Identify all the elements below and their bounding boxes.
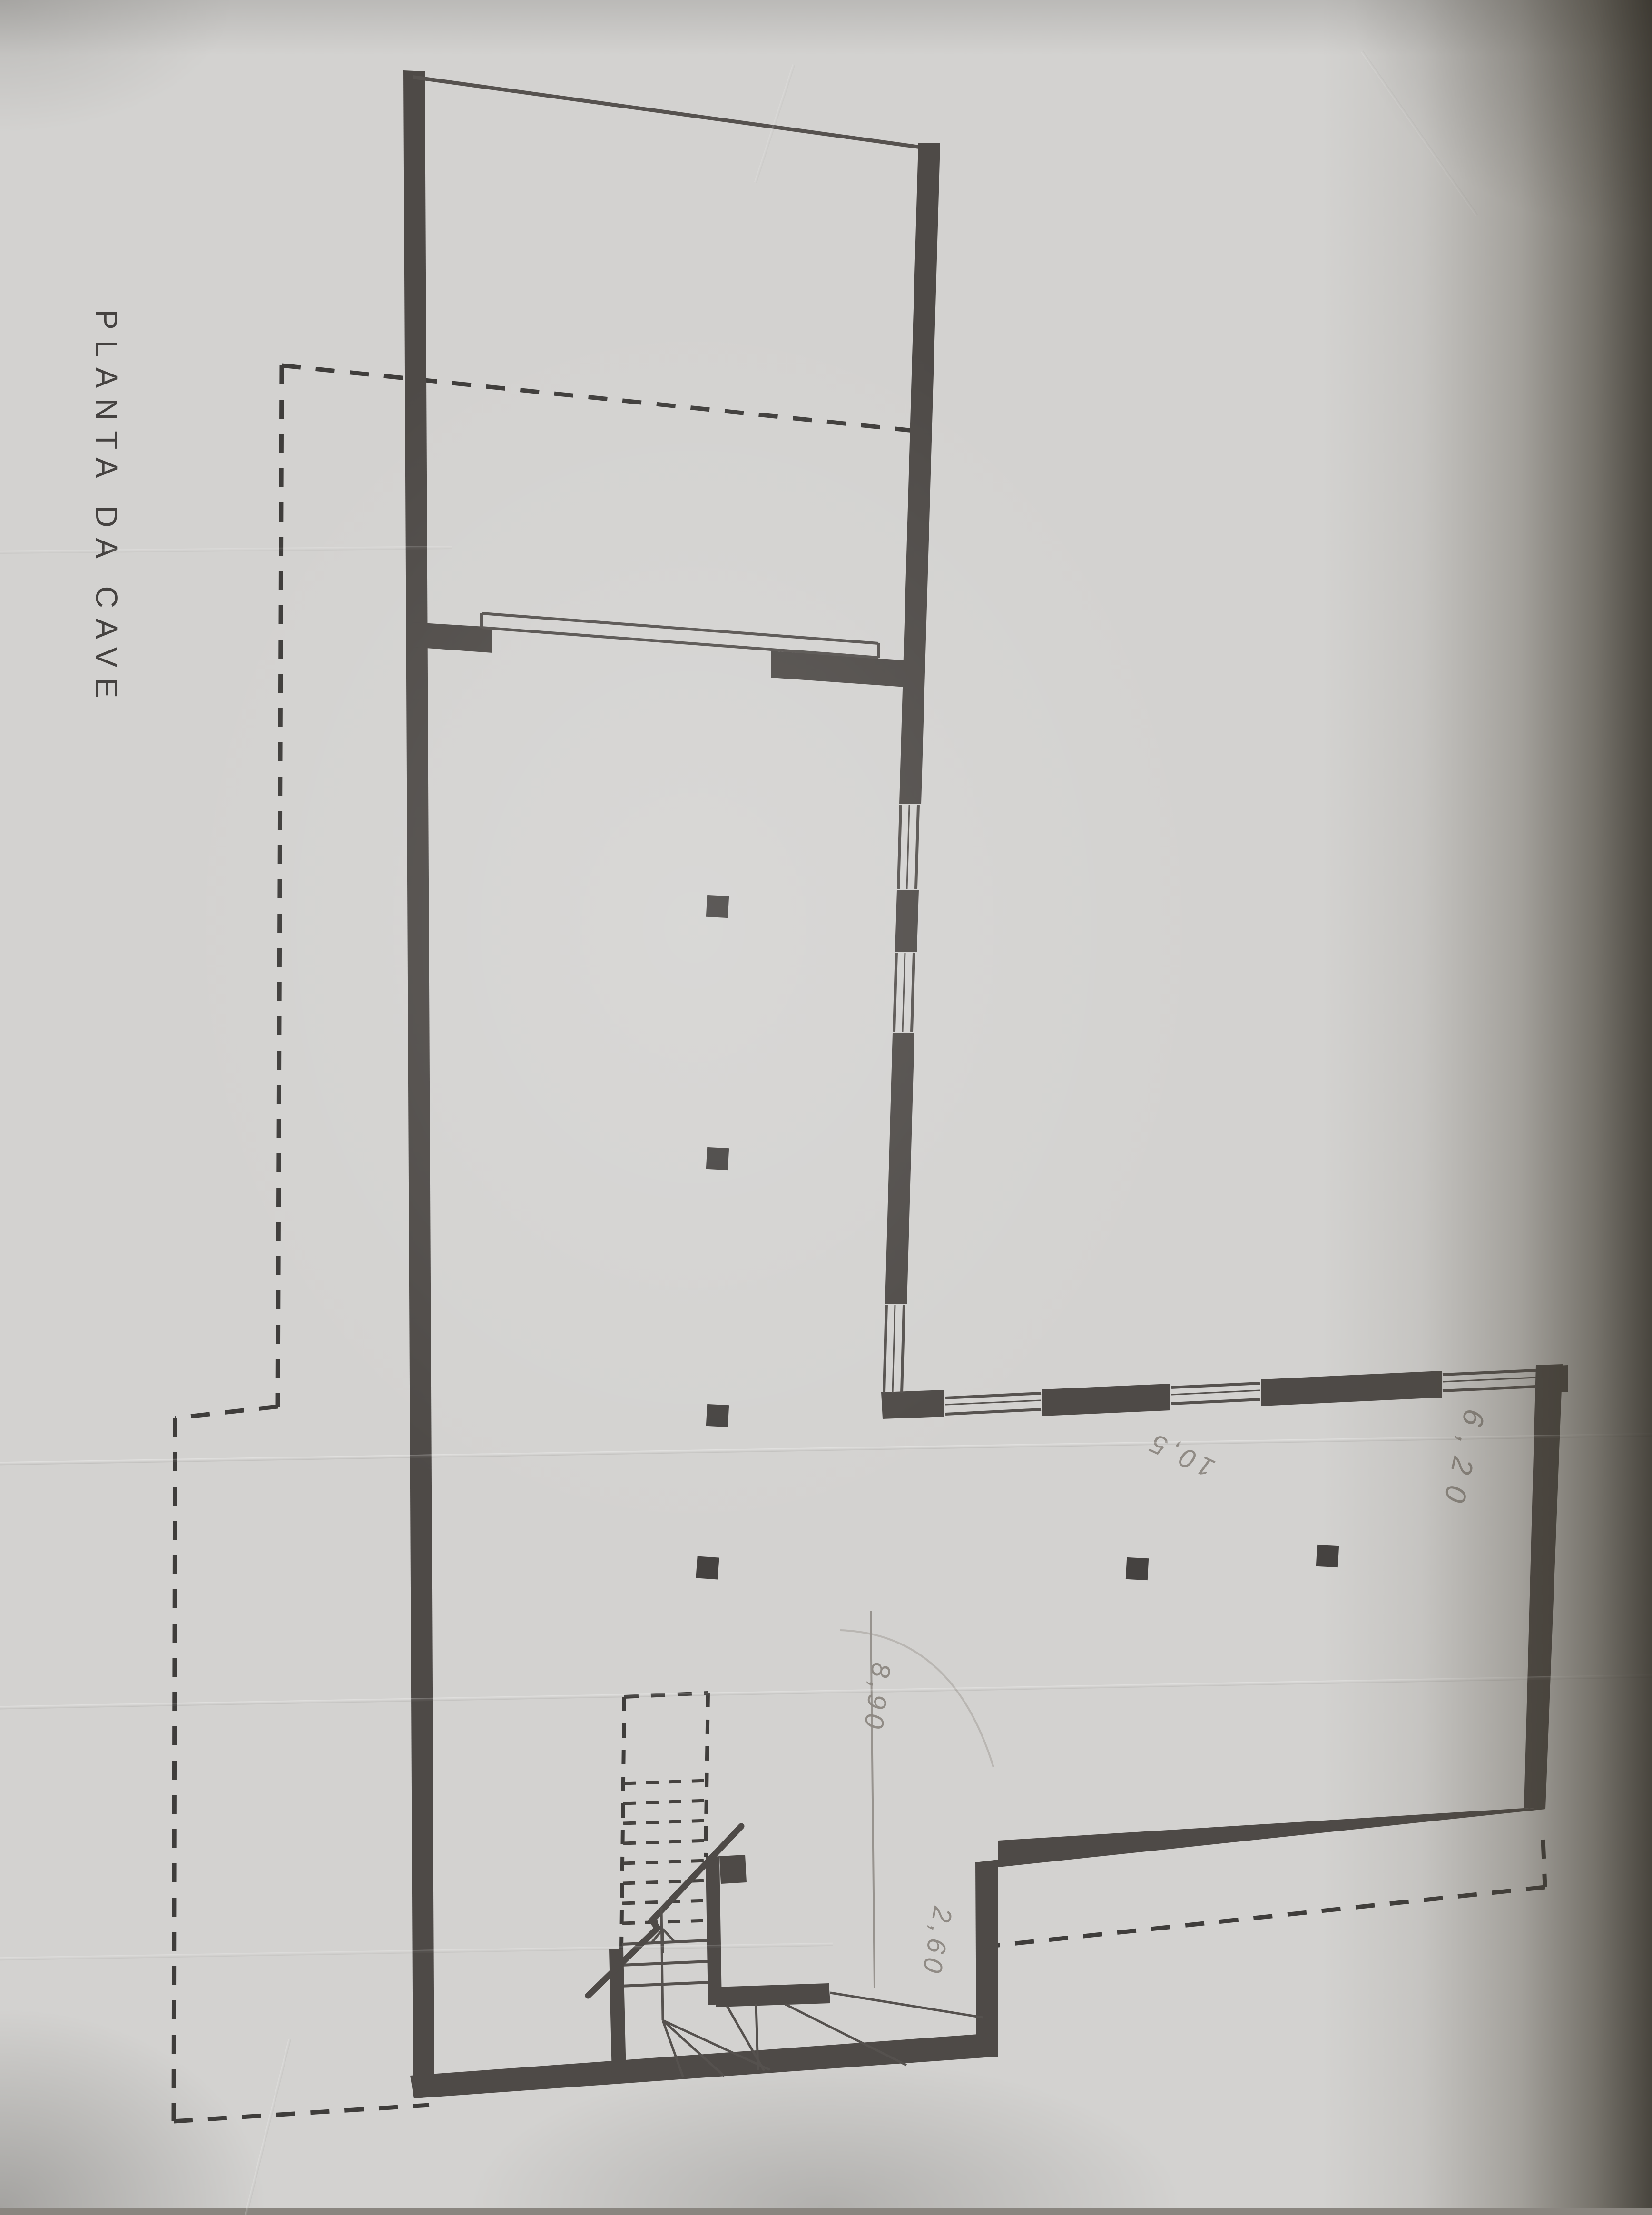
wall-bottom-left-block — [410, 2033, 998, 2098]
dimension-label-10-5: 10,5 — [1141, 1427, 1219, 1484]
window-rightroom-band-3 — [1443, 1370, 1536, 1391]
photographed-floor-plan-sheet: 8,90 2,60 10,5 6,20 — [0, 0, 1652, 2208]
wall-rightroom-top-1 — [1042, 1384, 1170, 1416]
wall-rightroom-bottom — [998, 1808, 1545, 1867]
wall-right-upper-c — [885, 1033, 914, 1304]
window-right-wall-2 — [894, 953, 914, 1032]
window-right-wall-3 — [884, 1305, 904, 1393]
wall-top-thin-line — [413, 77, 919, 147]
dashed-projection-outline — [174, 365, 1545, 2121]
columns — [696, 895, 1339, 1580]
dimension-label-2-60: 2,60 — [916, 1904, 958, 1980]
plan-title: PLANTA DA CAVE — [89, 309, 124, 709]
walls — [403, 70, 1568, 2098]
window-right-wall-1 — [898, 805, 918, 889]
pencil-annotations: 8,90 2,60 10,5 6,20 — [840, 1406, 1491, 1988]
windows — [482, 613, 1536, 1414]
wall-partition-right — [771, 651, 907, 687]
dimension-label-6-20: 6,20 — [1435, 1406, 1491, 1517]
wall-right-upper-a — [899, 143, 940, 804]
stair-dashed-treads — [622, 1781, 707, 1923]
dimension-label-8-90: 8,90 — [858, 1661, 897, 1735]
window-partition-panel — [482, 613, 878, 658]
window-rightroom-band-1 — [945, 1393, 1041, 1414]
wall-rightroom-top-2 — [1261, 1371, 1442, 1406]
wall-step-vertical — [975, 1860, 998, 2057]
floor-plan-drawing: 8,90 2,60 10,5 6,20 — [0, 0, 1652, 2208]
wall-left-exterior — [403, 70, 434, 2095]
wall-corner-middle-right — [881, 1390, 944, 1419]
staircase — [588, 1693, 983, 2077]
wall-right-upper-b — [895, 890, 919, 952]
wall-rightroom-right — [1524, 1364, 1563, 1809]
window-rightroom-band-2 — [1171, 1383, 1260, 1404]
